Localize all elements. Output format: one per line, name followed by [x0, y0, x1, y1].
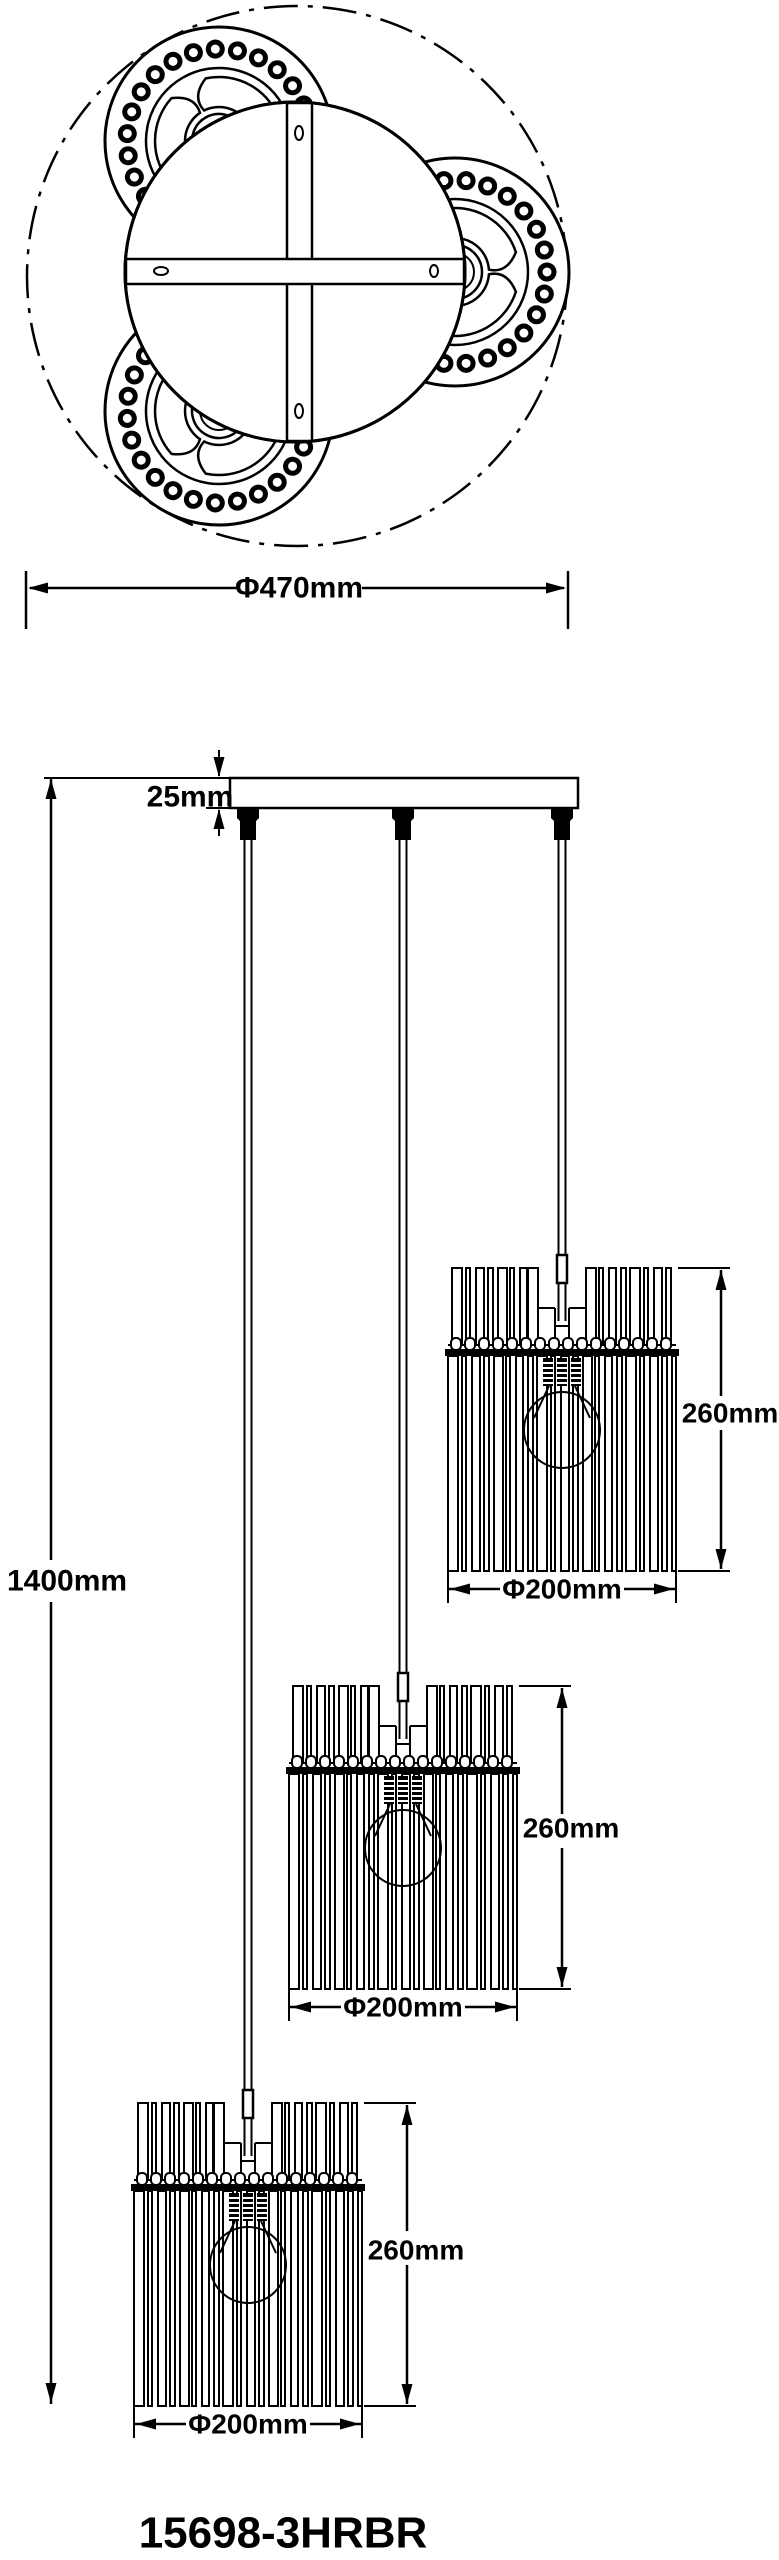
ceiling-plate — [230, 778, 578, 808]
front-view: 25mm 1400mm 260mm Φ200mm 260mm Φ200mm 26… — [7, 750, 778, 2440]
shade-1-diameter-label: Φ200mm — [502, 1574, 622, 1605]
top-view: Φ470mm — [26, 0, 569, 629]
total-height-label: 1400mm — [7, 1565, 127, 1598]
overall-diameter-label: Φ470mm — [235, 572, 363, 605]
shade-2 — [286, 1673, 520, 1989]
shade-3-diameter-label: Φ200mm — [188, 2409, 308, 2440]
pendant-cord-1 — [551, 808, 573, 1259]
shade-1-height-label: 260mm — [682, 1398, 779, 1429]
shade-2-diameter-label: Φ200mm — [343, 1992, 463, 2023]
pendant-lamp-dimension-drawing: Φ470mm 25mm 1400mm 260mm Φ200mm 260mm Φ2… — [0, 0, 779, 2560]
shade-2-height-label: 260mm — [523, 1813, 620, 1844]
ceiling-canopy-top-view — [125, 102, 465, 442]
technical-drawing-page: Φ470mm 25mm 1400mm 260mm Φ200mm 260mm Φ2… — [0, 0, 779, 2560]
pendant-cord-3 — [237, 808, 259, 2094]
shade-1 — [445, 1255, 679, 1571]
shade-3 — [131, 2090, 365, 2406]
pendant-cord-2 — [392, 808, 414, 1677]
canopy-thickness-label: 25mm — [147, 781, 234, 814]
shade-3-height-label: 260mm — [368, 2235, 465, 2266]
model-number: 15698-3HRBR — [139, 2509, 428, 2558]
